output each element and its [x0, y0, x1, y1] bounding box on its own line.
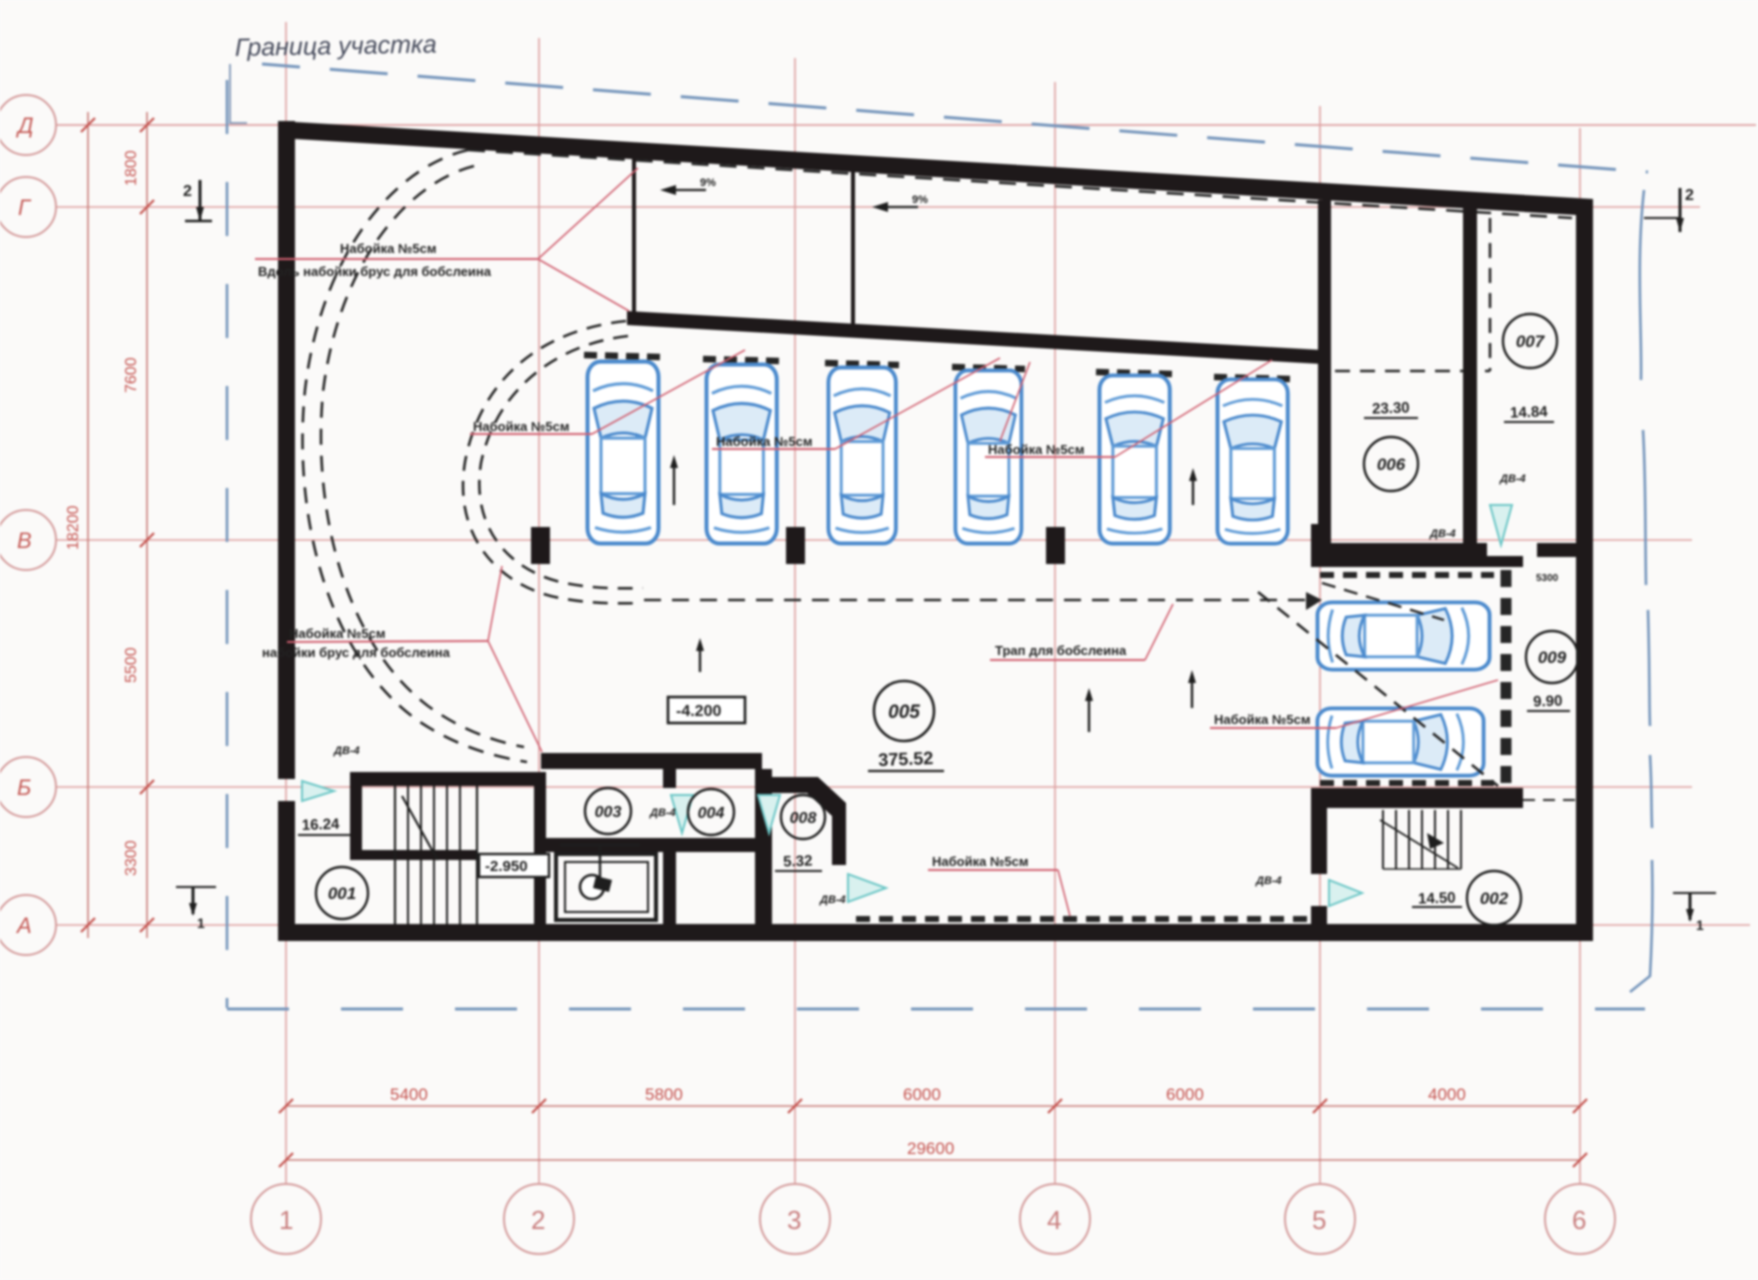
svg-text:2: 2	[531, 1205, 545, 1235]
svg-text:005: 005	[888, 702, 920, 723]
svg-text:Набойка №5см: Набойка №5см	[988, 442, 1085, 457]
svg-text:Набойка №5см: Набойка №5см	[473, 419, 570, 434]
svg-text:1: 1	[197, 915, 205, 931]
svg-text:008: 008	[790, 810, 817, 827]
svg-text:7600: 7600	[123, 357, 140, 393]
svg-text:4: 4	[1047, 1205, 1061, 1235]
svg-text:5800: 5800	[645, 1085, 683, 1104]
svg-text:Набойка №5см: Набойка №5см	[1214, 712, 1311, 727]
svg-text:5300: 5300	[1536, 573, 1559, 584]
svg-text:Вдоль набойки брус для бобсл: Вдоль набойки брус для бобслеина	[258, 264, 492, 279]
svg-text:Набойка №5см: Набойка №5см	[932, 854, 1029, 869]
svg-text:006: 006	[1377, 455, 1406, 474]
svg-text:-2.950: -2.950	[485, 858, 528, 875]
svg-text:001: 001	[328, 884, 356, 903]
svg-text:5.32: 5.32	[783, 852, 813, 870]
svg-text:ДВ-4: ДВ-4	[1499, 473, 1526, 485]
svg-text:18200: 18200	[65, 505, 82, 550]
svg-text:ДВ-4: ДВ-4	[1429, 528, 1456, 540]
svg-text:16.24: 16.24	[302, 816, 341, 834]
svg-text:Г: Г	[18, 195, 32, 220]
svg-text:14.50: 14.50	[1418, 889, 1456, 907]
svg-text:14.84: 14.84	[1510, 403, 1549, 421]
svg-text:5: 5	[1312, 1205, 1326, 1235]
svg-text:1: 1	[279, 1205, 293, 1235]
svg-text:Граница участка: Граница участка	[235, 30, 437, 62]
svg-text:Трап для бобслеина: Трап для бобслеина	[995, 643, 1127, 658]
svg-text:6: 6	[1572, 1205, 1586, 1235]
svg-text:6000: 6000	[1166, 1085, 1204, 1104]
svg-text:007: 007	[1516, 332, 1546, 351]
svg-text:4000: 4000	[1428, 1085, 1466, 1104]
svg-text:3300: 3300	[123, 840, 140, 876]
svg-text:ДВ-4: ДВ-4	[333, 745, 360, 757]
svg-text:29600: 29600	[907, 1139, 954, 1158]
svg-text:набойки брус для бобслеина: набойки брус для бобслеина	[262, 645, 451, 660]
svg-text:Набойка №5см: Набойка №5см	[716, 434, 813, 449]
svg-text:009: 009	[1538, 648, 1567, 667]
svg-text:5500: 5500	[123, 647, 140, 683]
svg-text:В: В	[17, 528, 32, 553]
svg-text:6000: 6000	[903, 1085, 941, 1104]
svg-text:004: 004	[698, 805, 725, 822]
svg-text:375.52: 375.52	[878, 748, 934, 770]
svg-text:Набойка №5см: Набойка №5см	[340, 241, 437, 256]
svg-text:1800: 1800	[123, 150, 140, 186]
svg-text:9.90: 9.90	[1533, 692, 1563, 710]
svg-text:2: 2	[1685, 187, 1694, 204]
svg-text:9%: 9%	[700, 177, 716, 189]
svg-text:002: 002	[1480, 889, 1509, 908]
svg-text:ДВ-4: ДВ-4	[819, 894, 846, 906]
svg-text:Набойка №5см: Набойка №5см	[289, 626, 386, 641]
svg-text:23.30: 23.30	[1372, 399, 1410, 417]
svg-text:ДВ-4: ДВ-4	[649, 807, 676, 819]
svg-text:А: А	[15, 913, 32, 938]
svg-text:2: 2	[183, 183, 192, 200]
svg-text:9%: 9%	[912, 194, 928, 206]
svg-text:ДВ-4: ДВ-4	[1255, 875, 1282, 887]
svg-text:3: 3	[787, 1205, 801, 1235]
svg-text:Б: Б	[17, 775, 31, 800]
svg-text:1: 1	[1696, 917, 1704, 933]
svg-text:-4.200: -4.200	[676, 703, 721, 720]
svg-text:003: 003	[595, 804, 622, 821]
svg-text:Д: Д	[15, 113, 34, 138]
svg-text:5400: 5400	[390, 1085, 428, 1104]
